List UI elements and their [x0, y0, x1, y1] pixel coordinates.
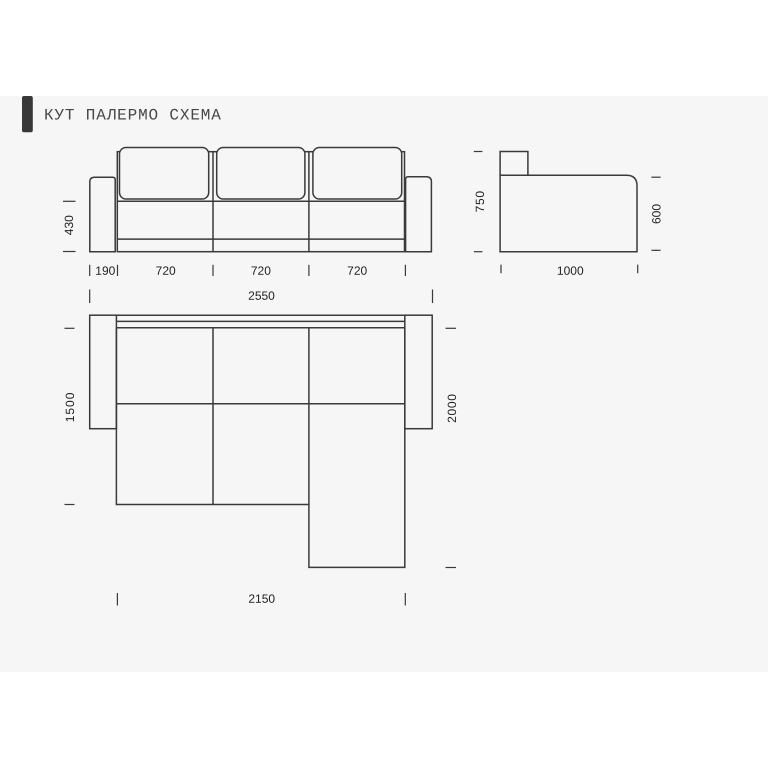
svg-text:190: 190 — [95, 264, 115, 278]
svg-text:1000: 1000 — [557, 264, 584, 278]
svg-text:750: 750 — [473, 190, 487, 212]
svg-text:2150: 2150 — [248, 592, 275, 606]
svg-text:КУТ ПАЛЕРМО СХЕМА: КУТ ПАЛЕРМО СХЕМА — [44, 107, 222, 125]
svg-text:600: 600 — [649, 204, 663, 224]
svg-text:720: 720 — [347, 264, 367, 278]
svg-text:720: 720 — [251, 264, 271, 278]
svg-text:430: 430 — [62, 215, 76, 235]
svg-text:1500: 1500 — [63, 392, 77, 423]
svg-text:720: 720 — [156, 264, 176, 278]
svg-text:2000: 2000 — [445, 393, 459, 423]
svg-text:2550: 2550 — [248, 289, 275, 303]
